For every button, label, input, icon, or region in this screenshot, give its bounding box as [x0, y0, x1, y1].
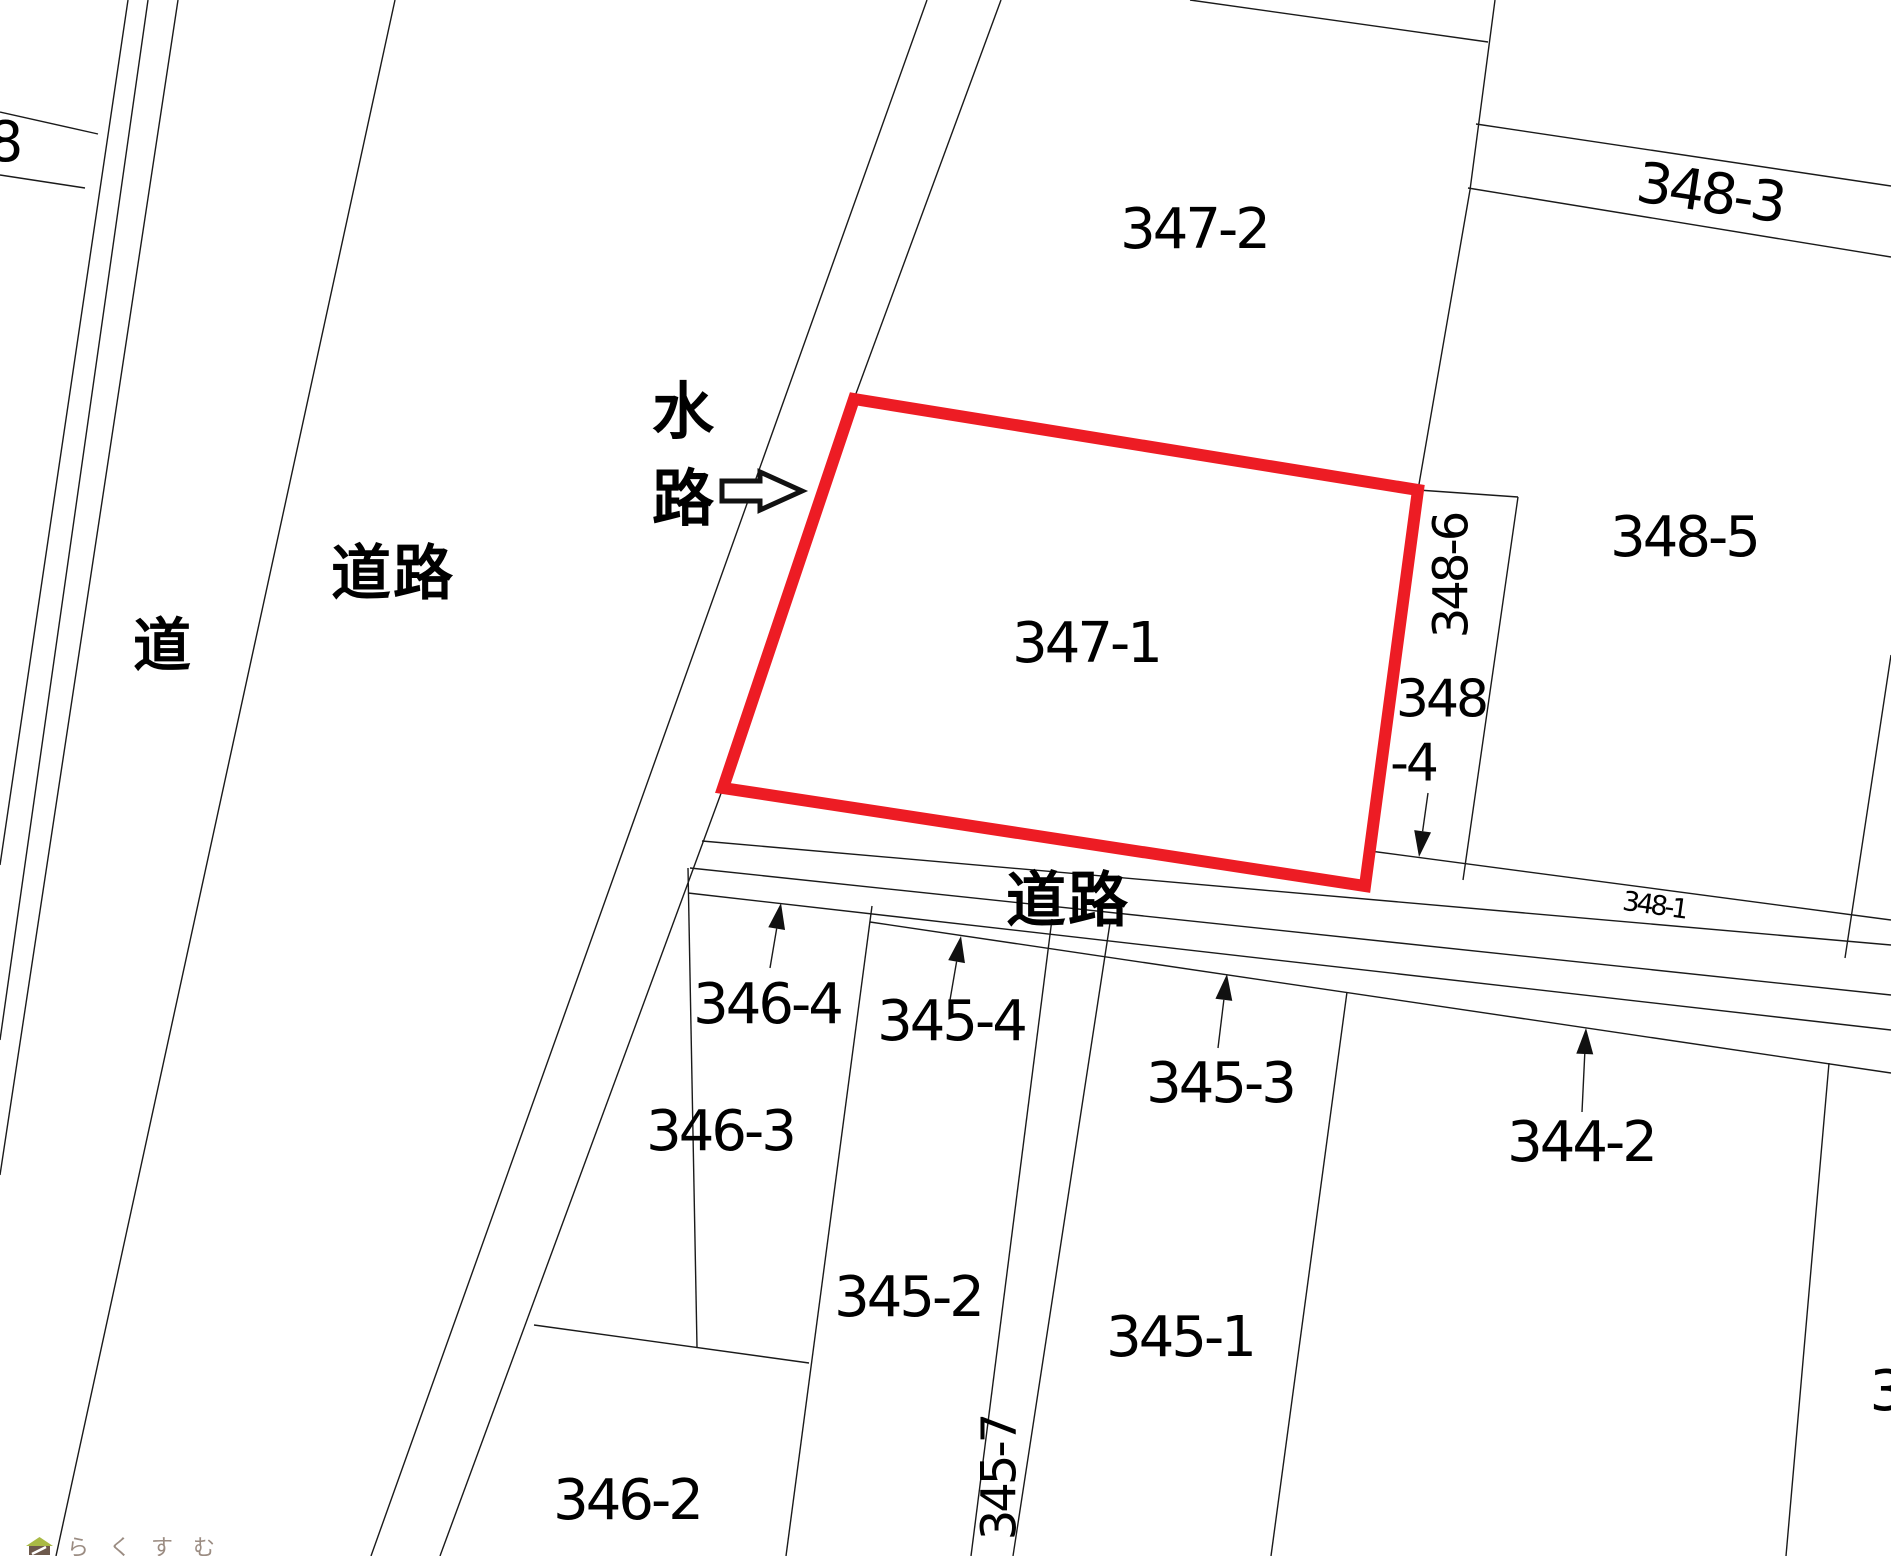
parcel-label-348-6: 348-6 [1418, 514, 1485, 638]
waterway-pointer-arrow [722, 472, 802, 510]
parcel-label-348-5: 348-5 [1610, 499, 1758, 577]
parcel-label-345-3: 345-3 [1146, 1045, 1294, 1123]
parcel-label-345-4: 345-4 [877, 983, 1025, 1061]
watermark: らくすむ [26, 1530, 235, 1556]
parcel-boundary-line [0, 0, 148, 1040]
road-edge-line [688, 893, 1891, 1030]
arrow-to-345-3 [1215, 974, 1232, 1048]
road-edge-line [702, 841, 1891, 945]
parcel-label-346-3: 346-3 [646, 1093, 794, 1171]
map-canvas: 8道路道水 路347-2347-1348-3348-5348-6348-4348… [0, 0, 1891, 1556]
parcel-label-346-2: 346-2 [553, 1462, 701, 1540]
arrow-to-348-4 [1414, 793, 1431, 857]
parcel-boundary-line [534, 1325, 809, 1363]
parcel-boundary-line [1418, 490, 1518, 497]
waterway-bank-line [440, 788, 723, 1556]
parcel-label-347-2: 347-2 [1120, 191, 1268, 269]
parcel-label-348-4-line1: 348 [1396, 664, 1486, 737]
parcel-label-346-4: 346-4 [693, 966, 841, 1044]
parcel-label-345-7: 345-7 [966, 1416, 1033, 1540]
parcel-label-345-2: 345-2 [834, 1259, 982, 1337]
watermark-text: らくすむ [67, 1530, 235, 1556]
parcel-boundary-line [1418, 0, 1495, 490]
arrow-to-344-2 [1576, 1028, 1593, 1112]
waterway-bank-line [854, 0, 1001, 399]
road-edge-line [690, 868, 1891, 995]
parcel-boundary-line [1786, 1063, 1829, 1556]
parcel-boundary-line [1845, 655, 1891, 958]
parcel-label-345-1: 345-1 [1106, 1299, 1254, 1377]
parcel-boundary-line [1190, 0, 1488, 42]
parcel-label-3-partial: 3 [1870, 1353, 1891, 1431]
waterway-label: 水 路 [652, 369, 716, 543]
parcel-label-347-1: 347-1 [1012, 605, 1160, 683]
road-label-michi: 道 [133, 605, 193, 686]
parcel-boundary-line [0, 0, 178, 1175]
parcel-boundary-line [56, 0, 395, 1556]
road-label-douro-left: 道路 [331, 532, 455, 616]
parcel-label-348-4-line2: -4 [1390, 728, 1436, 801]
parcel-label-344-2: 344-2 [1507, 1104, 1655, 1182]
house-icon [26, 1537, 53, 1555]
arrow-to-346-4 [768, 903, 785, 968]
road-label-douro-bottom: 道路 [1006, 859, 1130, 943]
parcel-label-8: 8 [0, 104, 20, 182]
